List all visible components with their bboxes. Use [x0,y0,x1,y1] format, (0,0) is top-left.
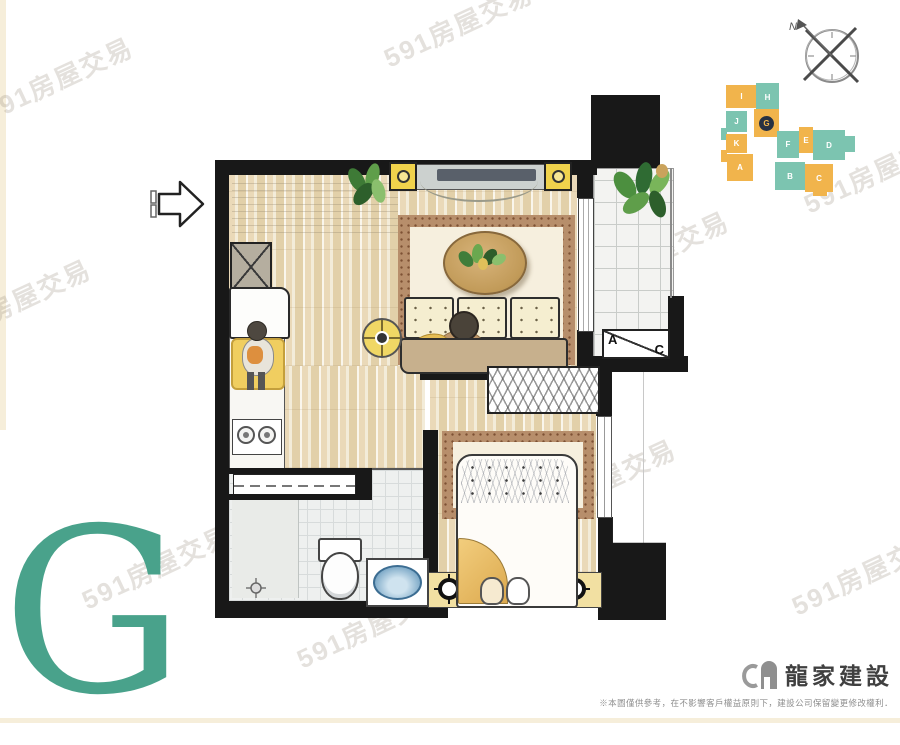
kitchen-person-leg [258,372,265,390]
sofa-cushions [404,297,560,339]
keyplan-block-j: J [726,111,747,132]
keyplan-block-g: G [754,109,779,137]
bathroom-top-line [372,468,423,470]
keyplan-block-k: K [726,134,747,153]
column-top-right [591,95,660,168]
stove-burner [237,426,255,444]
floorplan-page: { "unit_letter": { "label": "G", "color"… [0,0,900,723]
stove-burner [258,426,276,444]
bedroom-right-window [597,416,612,518]
ac-label-a: A [608,332,617,347]
ac-label-c: C [655,342,664,357]
wall-balcony-right [668,296,684,358]
keyplan-block-e: E [799,127,813,153]
builder-logo-icon [741,657,777,691]
page-edge-stripe-left [0,0,6,430]
bathroom-wall-stub [356,468,372,500]
balcony-sliding-door [578,198,594,332]
keyplan-block-b: B [775,162,805,190]
bathroom-door-sill [229,494,356,500]
keyplan-block-h: H [756,83,779,111]
wall-left [215,160,229,618]
curtain-arc [420,160,538,202]
site-keyplan: I H J G K A F E D B C [718,80,878,200]
compass-north-label: N [789,21,797,33]
watermark-text: 591房屋交易 [0,246,105,351]
wall-fixture-right [544,162,572,191]
watermark-text: 591房屋交易 [0,24,147,129]
column-bottom-right [598,517,666,620]
side-table-center [375,331,389,345]
sink-basin [373,565,422,600]
kitchen-person-shirt [247,346,263,364]
table-plant [458,242,510,276]
keyplan-block-d: D [813,130,845,160]
keyplan-nub [845,136,855,152]
balcony-plant [612,162,682,224]
plant-top-left [344,163,396,213]
keyplan-block-f: F [777,131,799,158]
wall-living-balcony-top [577,160,593,198]
kitchen-person-head [247,321,267,341]
kitchen-person-leg [247,372,254,390]
shoe-cabinet [230,242,272,292]
watermark-text: 591房屋交易 [785,518,900,623]
sofa-person-head [449,311,479,341]
site-boundary-line [643,372,644,544]
entrance-arrow-icon [150,174,208,234]
keyplan-highlight-ring: G [759,116,774,131]
toilet-bowl [321,552,359,600]
slipper [506,577,530,605]
watermark-text: 591房屋交易 [377,0,547,75]
unit-letter: G [2,498,184,726]
keyplan-block-a: A [727,154,753,181]
keyplan-block-i: I [726,85,757,108]
disclaimer-text: ※本圖僅供參考，在不影響客戶權益原則下，建設公司保留變更修改權利． [563,697,893,709]
bed-pillow-band [461,459,569,503]
footer: 龍家建設 ※本圖僅供參考，在不影響客戶權益原則下，建設公司保留變更修改權利． [563,657,893,709]
wall-living-balcony-bottom [577,330,593,358]
slipper [480,577,504,605]
floor-drain-icon [246,578,266,598]
ac-unit-box: A C [602,329,670,359]
keyplan-block-c: C [805,164,833,192]
wardrobe-closet [487,366,600,414]
bathroom-sliding-door [233,474,356,496]
corridor-floor [283,366,425,468]
builder-name: 龍家建設 [785,657,893,691]
